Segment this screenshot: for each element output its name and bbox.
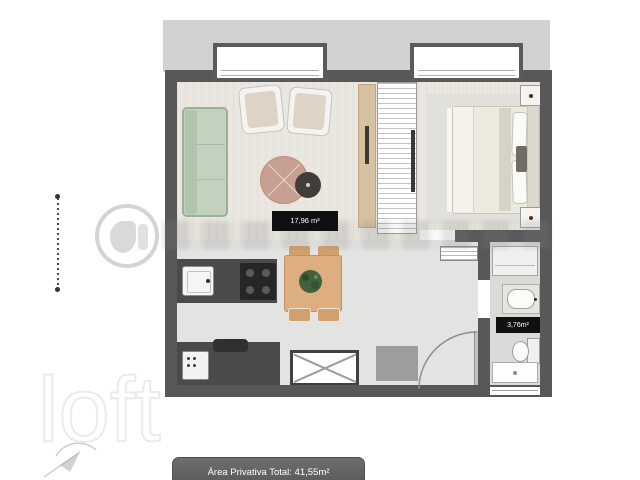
- dimension-end-dot: [55, 287, 60, 292]
- dimension-line: [57, 198, 59, 288]
- watermark-blur-band: [163, 221, 552, 249]
- living-area-label: 17,96 m²: [272, 211, 338, 231]
- pouf-seams: [268, 164, 300, 196]
- floor-plan-image: loft 17,96 m² 3,76m² Área Privativa Tota…: [0, 0, 640, 480]
- living-area-value: 17,96 m²: [290, 217, 320, 225]
- dimension-end-dot: [55, 194, 60, 199]
- watermark-logo-mark: [110, 221, 136, 253]
- watermark-logo-mark: [138, 224, 148, 250]
- bathroom-area-label: 3,76m²: [496, 317, 540, 333]
- total-area-badge: Área Privativa Total: 41,55m²: [172, 457, 365, 480]
- bathroom-area-value: 3,76m²: [507, 322, 529, 329]
- total-area-text: Área Privativa Total: 41,55m²: [208, 467, 330, 478]
- watermark-brand-text: loft: [38, 358, 161, 464]
- entry-door-arc: [419, 332, 477, 389]
